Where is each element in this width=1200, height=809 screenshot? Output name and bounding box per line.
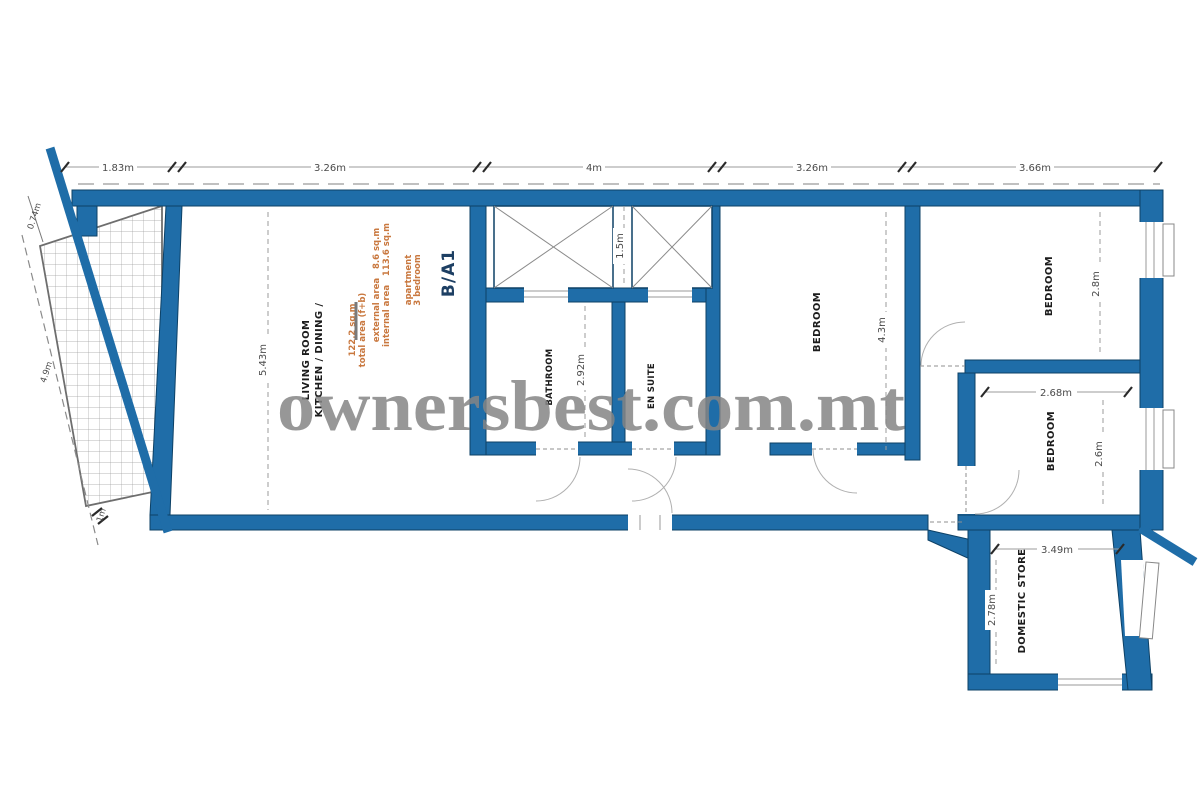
dim-top-1: 1.83m xyxy=(102,163,134,174)
window-bedroom-br-sill xyxy=(1163,410,1174,468)
dim-top-2: 3.26m xyxy=(314,163,346,174)
entrance-door-arc xyxy=(628,469,672,513)
unit-type-line2: apartment xyxy=(404,255,414,306)
store-depth-label: 2.78m xyxy=(987,594,998,626)
title-block: B/A1 3 bedroom apartment internal area 1… xyxy=(348,223,459,367)
watermark-text: ownersbest.com.mt xyxy=(277,366,905,446)
bedroom-tr-depth-label: 2.8m xyxy=(1091,271,1102,297)
dim-top-3: 4m xyxy=(586,163,602,174)
store-width-label: 3.49m xyxy=(1041,545,1073,556)
wall-top xyxy=(72,190,1163,206)
store-bottom-window-gap xyxy=(1058,672,1122,692)
terrace-top-dim-label: 0.74m xyxy=(26,202,44,231)
bathroom-door-arc xyxy=(536,457,580,501)
ensuite-door-arc xyxy=(632,457,676,501)
wall-bottom-bedroom xyxy=(958,515,1163,530)
bedroom-tr-door-arc xyxy=(921,322,965,366)
floor-plan-page: 1.83m 3.26m 4m 3.26m 3.66m 5.43m 1.5m 2.… xyxy=(0,0,1200,809)
bedroom-mid-label: BEDROOM xyxy=(812,292,823,352)
window-bedroom-tr-gap xyxy=(1138,222,1165,278)
wall-bedroom-mid-right xyxy=(905,206,920,460)
top-dimension-chain: 1.83m 3.26m 4m 3.26m 3.66m xyxy=(61,160,1162,184)
shaft-window-bathroom xyxy=(524,286,568,304)
shaft-width-label: 1.5m xyxy=(615,233,626,259)
bedroom-br-door-arc xyxy=(975,470,1019,514)
shaft-window-ensuite xyxy=(648,286,692,304)
wall-bottom-main xyxy=(150,515,928,530)
bedroom-br-width-label: 2.68m xyxy=(1040,388,1072,399)
kitchen-depth-label: 5.43m xyxy=(258,344,269,376)
window-bedroom-br-gap xyxy=(1138,408,1165,470)
unit-type-line1: 3 bedroom xyxy=(413,254,423,306)
dim-top-4: 3.26m xyxy=(796,163,828,174)
bedroom-br-label: BEDROOM xyxy=(1046,411,1057,471)
bedroom-tr-label: BEDROOM xyxy=(1044,256,1055,316)
wall-store-wedge xyxy=(928,530,972,560)
bedroom-mid-depth-label: 4.3m xyxy=(877,317,888,343)
unit-title: B/A1 xyxy=(439,249,459,297)
terrace-side-dim-label: 4.9m xyxy=(39,360,55,384)
dim-top-5: 3.66m xyxy=(1019,163,1051,174)
store-label: DOMESTIC STORE xyxy=(1017,549,1028,654)
internal-area-text: internal area 113.6 sq.m xyxy=(382,223,392,347)
entrance-door-gap xyxy=(628,513,672,532)
window-bedroom-tr-sill xyxy=(1163,224,1174,276)
shafts xyxy=(494,206,712,288)
external-area-text: external area 8.6 sq.m xyxy=(372,228,382,343)
bedroom-br-depth-label: 2.6m xyxy=(1094,441,1105,467)
store-right-diagonal xyxy=(1140,528,1195,562)
total-area-label: total area (f+b) xyxy=(358,293,368,368)
floor-plan-drawing: 1.83m 3.26m 4m 3.26m 3.66m 5.43m 1.5m 2.… xyxy=(0,0,1200,809)
wall-bedrooms-right-divider xyxy=(965,360,1140,373)
terrace-bottom-dim-label: 1m xyxy=(95,507,109,523)
